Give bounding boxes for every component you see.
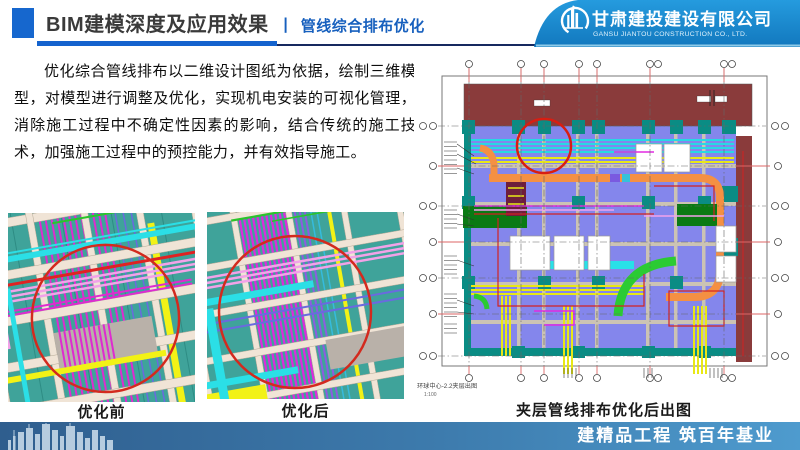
before-caption: 优化前 — [8, 401, 195, 422]
footer-slogan: 建精品工程 筑百年基业 — [577, 422, 774, 450]
company-name: 甘肃建投建设有限公司 — [592, 9, 772, 29]
slide-title: BIM建模深度及应用效果 — [46, 9, 269, 41]
after-caption: 优化后 — [207, 400, 404, 421]
mezzanine-plan-figure: 环球中心-2.2夹层出图 1:100 — [414, 56, 794, 405]
title-separator: 丨 — [278, 12, 294, 36]
page-title: BIM建模深度及应用效果 丨 管线综合排布优化 — [46, 9, 425, 41]
presentation-slide: BIM建模深度及应用效果 丨 管线综合排布优化 甘肃建投建设有限公司 — [0, 0, 800, 450]
footer-bar: 建精品工程 筑百年基业 — [0, 422, 800, 450]
after-optimization-figure — [207, 212, 404, 404]
plan-title-small: 环球中心-2.2夹层出图 — [417, 382, 477, 390]
header-accent-square — [12, 8, 34, 38]
slide-subtitle: 管线综合排布优化 — [301, 15, 425, 36]
before-optimization-figure — [8, 213, 195, 407]
plan-caption: 夹层管线排布优化后出图 — [414, 399, 794, 420]
company-logo-banner: 甘肃建投建设有限公司 GANSU JIANTOU CONSTRUCTION CO… — [530, 0, 800, 47]
description-paragraph: 优化综合管线排布以二维设计图纸为依据，绘制三维模型，对模型进行调整及优化，实现机… — [14, 58, 416, 166]
company-name-en: GANSU JIANTOU CONSTRUCTION CO., LTD. — [593, 31, 747, 38]
header-underline-accent — [37, 41, 277, 46]
plan-scale: 1:100 — [424, 392, 437, 398]
city-skyline-icon — [8, 423, 128, 450]
